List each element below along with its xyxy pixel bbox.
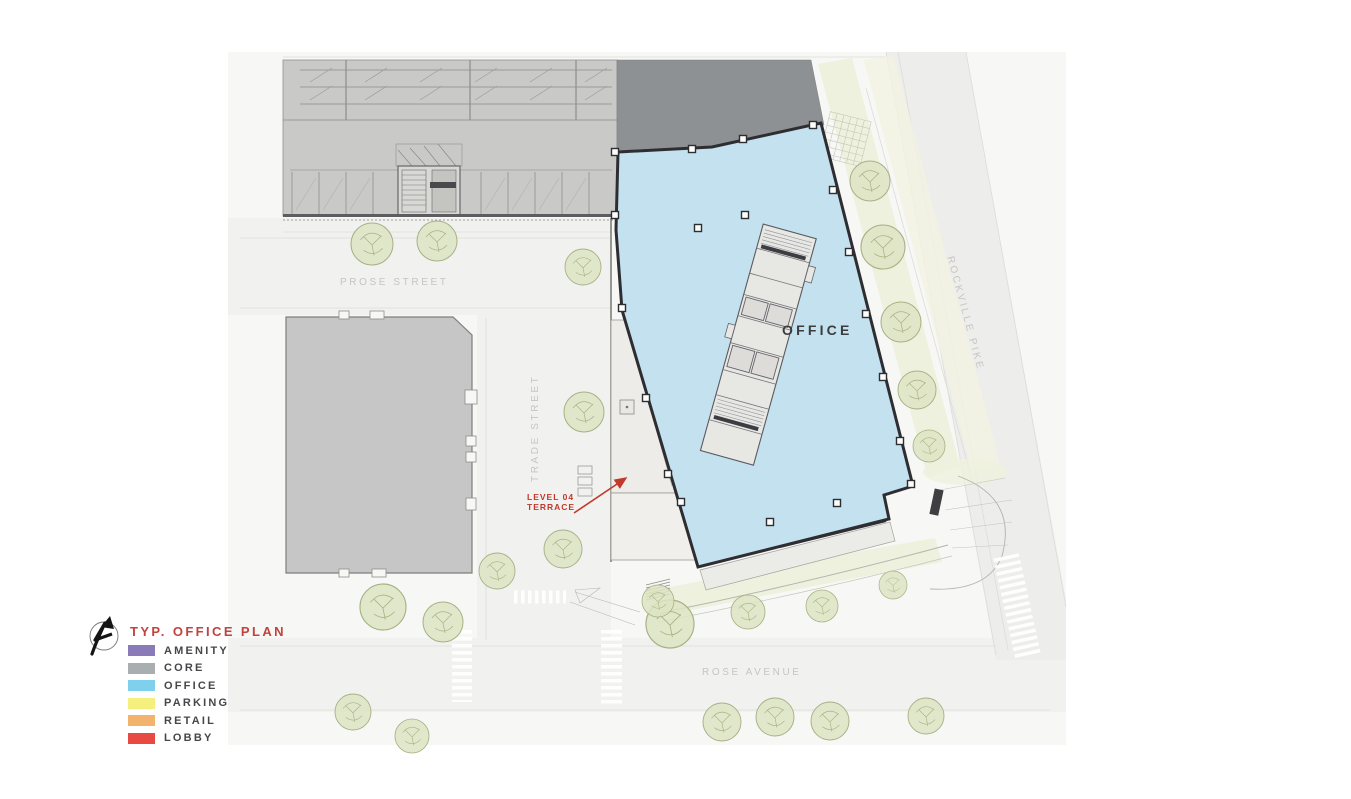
legend-item-lobby: LOBBY	[128, 733, 306, 744]
legend-swatch-office	[128, 680, 155, 691]
legend-swatch-parking	[128, 698, 155, 709]
legend-label-office: OFFICE	[164, 680, 218, 692]
office-label: OFFICE	[782, 322, 853, 338]
site-plan-page: PROSE STREET TRADE STREET ROSE AVENUE RO…	[0, 0, 1351, 799]
legend-item-amenity: AMENITY	[128, 645, 306, 656]
legend-title: TYP. OFFICE PLAN	[130, 624, 306, 639]
legend-items: AMENITY CORE OFFICE PARKING RETAIL LOBBY	[128, 645, 306, 744]
street-label-prose: PROSE STREET	[340, 277, 448, 288]
left-building	[286, 311, 477, 577]
legend-swatch-amenity	[128, 645, 155, 656]
street-label-trade: TRADE STREET	[530, 375, 541, 482]
legend-label-retail: RETAIL	[164, 715, 216, 727]
north-arrow-icon	[86, 612, 128, 662]
terrace-annotation-line2: TERRACE	[527, 503, 575, 513]
legend-swatch-lobby	[128, 733, 155, 744]
legend-label-parking: PARKING	[164, 697, 229, 709]
legend-label-lobby: LOBBY	[164, 732, 214, 744]
legend-item-office: OFFICE	[128, 680, 306, 691]
legend-item-parking: PARKING	[128, 698, 306, 709]
legend-label-core: CORE	[164, 662, 205, 674]
street-label-rose: ROSE AVENUE	[702, 667, 802, 678]
parking-garage	[283, 60, 617, 220]
legend-label-amenity: AMENITY	[164, 645, 229, 657]
legend-swatch-core	[128, 663, 155, 674]
legend-item-retail: RETAIL	[128, 715, 306, 726]
terrace-annotation: LEVEL 04 TERRACE	[527, 493, 575, 512]
legend-swatch-retail	[128, 715, 155, 726]
legend-item-core: CORE	[128, 663, 306, 674]
legend: TYP. OFFICE PLAN AMENITY CORE OFFICE PAR…	[86, 612, 306, 750]
